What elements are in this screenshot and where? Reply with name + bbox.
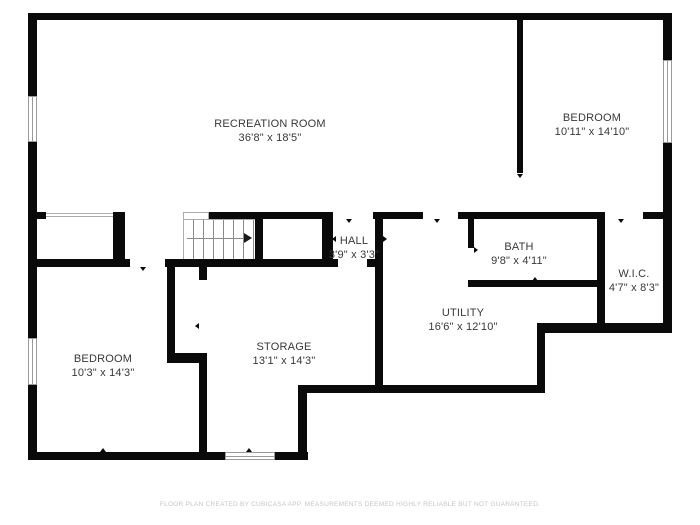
opening-tick xyxy=(474,247,478,253)
room-label-recreation-room: RECREATION ROOM 36'8" x 18'5" xyxy=(214,118,326,145)
opening-tick xyxy=(628,323,634,327)
window xyxy=(28,96,37,142)
room-name: STORAGE xyxy=(253,341,316,355)
wall xyxy=(517,17,523,173)
room-dimensions: 10'11" x 14'10" xyxy=(555,126,630,140)
wall xyxy=(28,13,37,460)
opening-tick xyxy=(140,267,146,271)
footer-disclaimer: FLOOR PLAN CREATED BY CUBICASA APP. MEAS… xyxy=(160,501,540,508)
wall xyxy=(199,353,207,460)
room-label-wic: W.I.C. 4'7" x 8'3" xyxy=(609,268,659,295)
opening-tick xyxy=(195,323,199,329)
opening-tick xyxy=(246,448,252,452)
room-name: W.I.C. xyxy=(609,268,659,282)
room-name: UTILITY xyxy=(428,307,497,321)
wall xyxy=(199,263,207,280)
room-name: BATH xyxy=(491,241,547,255)
room-dimensions: 9'8" x 4'11" xyxy=(491,255,547,269)
stair-direction-arrow-icon xyxy=(244,233,252,243)
wall xyxy=(167,267,175,363)
wall xyxy=(207,212,333,219)
room-label-hall: HALL 3'9" x 3'3" xyxy=(329,235,379,262)
wall xyxy=(37,212,46,219)
room-dimensions: 4'7" x 8'3" xyxy=(609,282,659,296)
room-dimensions: 10'3" x 14'3" xyxy=(72,367,135,381)
cased-opening xyxy=(46,213,113,217)
room-dimensions: 16'6" x 12'10" xyxy=(428,321,497,335)
room-name: RECREATION ROOM xyxy=(214,118,326,132)
wall xyxy=(113,212,125,263)
wall xyxy=(537,325,545,393)
wall xyxy=(298,387,307,460)
room-dimensions: 3'9" x 3'3" xyxy=(329,249,379,263)
wall xyxy=(255,212,263,266)
wall xyxy=(28,259,130,267)
room-name: HALL xyxy=(329,235,379,249)
room-label-storage: STORAGE 13'1" x 14'3" xyxy=(253,341,316,368)
wall xyxy=(468,280,605,287)
wall xyxy=(468,212,474,248)
opening-tick xyxy=(517,174,523,178)
opening-tick xyxy=(532,277,538,281)
opening-tick xyxy=(434,219,440,223)
window xyxy=(28,338,37,385)
wall xyxy=(165,259,338,267)
room-label-bedroom-upper: BEDROOM 10'11" x 14'10" xyxy=(555,112,630,139)
wall xyxy=(458,212,605,219)
wall xyxy=(28,13,672,20)
room-name: BEDROOM xyxy=(555,112,630,126)
room-label-bedroom-lower: BEDROOM 10'3" x 14'3" xyxy=(72,353,135,380)
room-label-utility: UTILITY 16'6" x 12'10" xyxy=(428,307,497,334)
room-dimensions: 13'1" x 14'3" xyxy=(253,355,316,369)
room-name: BEDROOM xyxy=(72,353,135,367)
stair-direction-line xyxy=(187,238,245,239)
opening-tick xyxy=(383,236,387,242)
wall xyxy=(643,212,667,219)
window xyxy=(225,452,275,460)
opening-tick xyxy=(346,219,352,223)
opening-tick xyxy=(173,16,179,20)
wall xyxy=(597,212,605,333)
opening-tick xyxy=(100,448,106,452)
window xyxy=(663,60,672,143)
opening-tick xyxy=(618,219,624,223)
room-dimensions: 36'8" x 18'5" xyxy=(214,132,326,146)
room-label-bath: BATH 9'8" x 4'11" xyxy=(491,241,547,268)
floor-plan: RECREATION ROOM 36'8" x 18'5" BEDROOM 10… xyxy=(0,0,700,525)
wall xyxy=(298,385,545,393)
